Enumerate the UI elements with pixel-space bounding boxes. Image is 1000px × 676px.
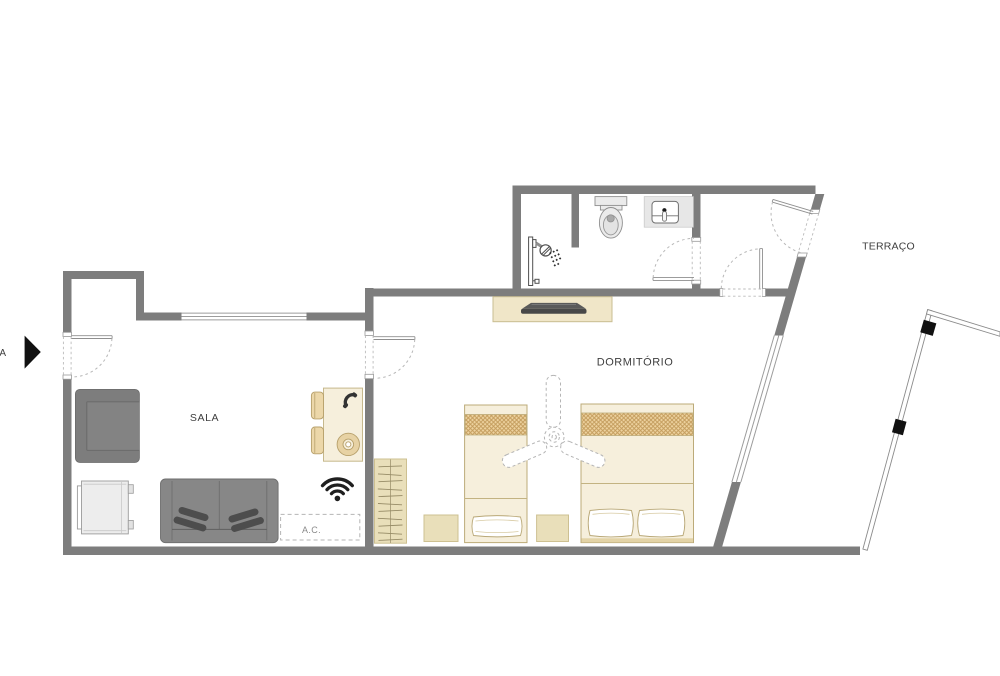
svg-text:ENTRADA: ENTRADA xyxy=(0,348,7,359)
svg-text:SALA: SALA xyxy=(190,412,219,424)
svg-text:DORMITÓRIO: DORMITÓRIO xyxy=(597,356,674,369)
svg-text:TERRAÇO: TERRAÇO xyxy=(862,240,915,252)
svg-text:A.C.: A.C. xyxy=(302,525,321,535)
